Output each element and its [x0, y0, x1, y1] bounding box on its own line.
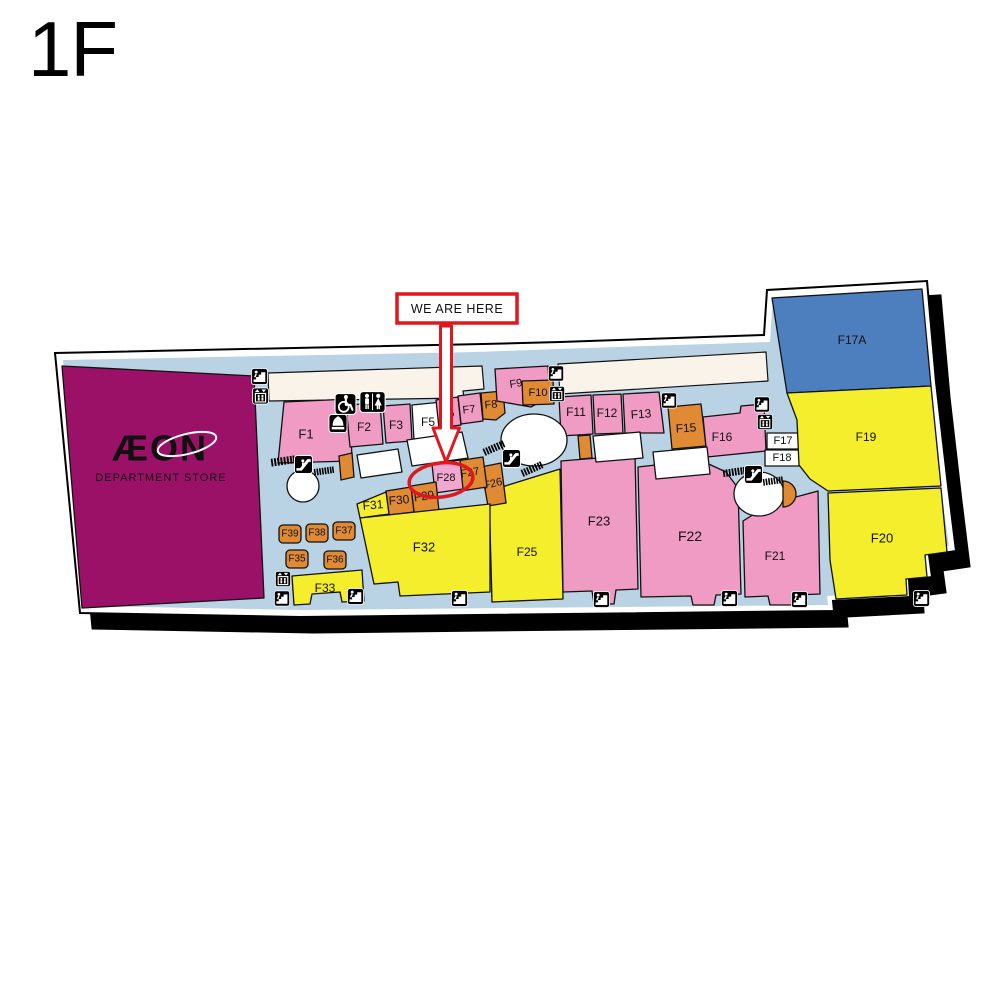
unit-F23: F23 — [561, 455, 638, 604]
unit-F9-label: F9 — [509, 377, 524, 391]
unit-F7-label: F7 — [462, 403, 476, 416]
unit-F25-label: F25 — [517, 545, 538, 559]
elevator-icon — [275, 571, 290, 586]
unit-F8-label: F8 — [484, 398, 498, 411]
stairs-icon — [791, 591, 807, 607]
unit-F7: F7 — [458, 393, 483, 424]
aeon-subtitle: DEPARTMENT STORE — [95, 472, 226, 484]
unit-F22: F22 — [638, 460, 741, 605]
unit-F19: F19 — [787, 386, 941, 491]
unit-F17-label: F17 — [774, 435, 793, 447]
unit-F17: F17 — [767, 433, 800, 449]
stairs-icon — [274, 591, 289, 606]
toilets-icon — [360, 392, 385, 413]
unit-F35-label: F35 — [288, 554, 306, 565]
unit-F31-label: F31 — [362, 497, 384, 513]
kiosk-island — [653, 447, 710, 479]
we-are-here-label: WE ARE HERE — [411, 302, 503, 316]
walkway-block — [339, 453, 354, 480]
stairs-icon — [754, 397, 769, 412]
aeon-block — [62, 366, 264, 608]
unit-F32-label: F32 — [413, 540, 435, 555]
stairs-icon — [593, 591, 609, 607]
walkway-block — [578, 435, 592, 459]
unit-F12: F12 — [593, 394, 623, 434]
unit-F10-label: F10 — [529, 387, 548, 399]
unit-F17A-label: F17A — [838, 333, 867, 347]
stairs-icon — [721, 590, 737, 606]
atrium-circle — [287, 470, 319, 502]
unit-F13: F13 — [623, 392, 664, 433]
prayer-room-icon — [329, 414, 347, 432]
elevator-icon — [549, 386, 564, 401]
unit-F16-label: F16 — [712, 430, 733, 444]
unit-F11-label: F11 — [566, 405, 586, 419]
stairs-icon — [347, 588, 363, 604]
unit-F18: F18 — [765, 450, 800, 466]
floor-map-page: 1F — [0, 0, 1001, 1001]
elevator-icon — [757, 414, 772, 429]
accessible-toilet-icon — [335, 394, 356, 415]
unit-F36-label: F36 — [326, 555, 344, 566]
unit-F32: F32 — [360, 504, 490, 596]
stairs-icon — [661, 393, 676, 408]
unit-F1-label: F1 — [298, 427, 313, 442]
unit-F3-label: F3 — [389, 418, 403, 432]
stairs-icon — [251, 368, 267, 384]
kiosk-island — [593, 432, 643, 462]
stairs-icon — [913, 590, 929, 606]
stairs-icon — [451, 590, 467, 606]
escalator-icon — [294, 455, 312, 473]
unit-F39: F39 — [279, 525, 301, 543]
unit-F15: F15 — [668, 404, 706, 449]
unit-F37: F37 — [333, 522, 355, 540]
unit-F22-label: F22 — [678, 528, 702, 544]
unit-F36: F36 — [324, 551, 346, 569]
unit-F17A: F17A — [772, 289, 931, 393]
unit-F33-label: F33 — [315, 581, 336, 595]
unit-F18-label: F18 — [773, 452, 792, 464]
unit-F13-label: F13 — [630, 406, 652, 421]
escalator-icon — [744, 465, 762, 483]
unit-F15-label: F15 — [675, 420, 697, 435]
aeon-logo: ÆON — [112, 428, 208, 469]
stairs-icon — [548, 366, 563, 381]
floor-map-svg: ÆON DEPARTMENT STORE F1 F2 F3 F5 — [0, 0, 1001, 1001]
unit-F30: F30 — [386, 487, 414, 515]
unit-F2-label: F2 — [357, 420, 371, 434]
unit-F39-label: F39 — [281, 529, 299, 540]
unit-F12-label: F12 — [597, 406, 618, 420]
unit-F37-label: F37 — [335, 526, 353, 537]
elevator-icon — [252, 388, 268, 404]
unit-F3: F3 — [383, 404, 412, 443]
unit-F20-label: F20 — [871, 531, 893, 546]
unit-F19-label: F19 — [856, 430, 877, 444]
unit-F38: F38 — [306, 524, 328, 542]
unit-F35: F35 — [286, 550, 308, 568]
escalator-icon — [502, 449, 520, 467]
anchor-store-aeon: ÆON DEPARTMENT STORE — [62, 366, 264, 608]
unit-F38-label: F38 — [308, 528, 326, 539]
unit-F21-label: F21 — [765, 549, 786, 563]
unit-F28-label: F28 — [437, 472, 456, 484]
unit-F30-label: F30 — [388, 492, 410, 508]
unit-F23-label: F23 — [588, 514, 610, 529]
